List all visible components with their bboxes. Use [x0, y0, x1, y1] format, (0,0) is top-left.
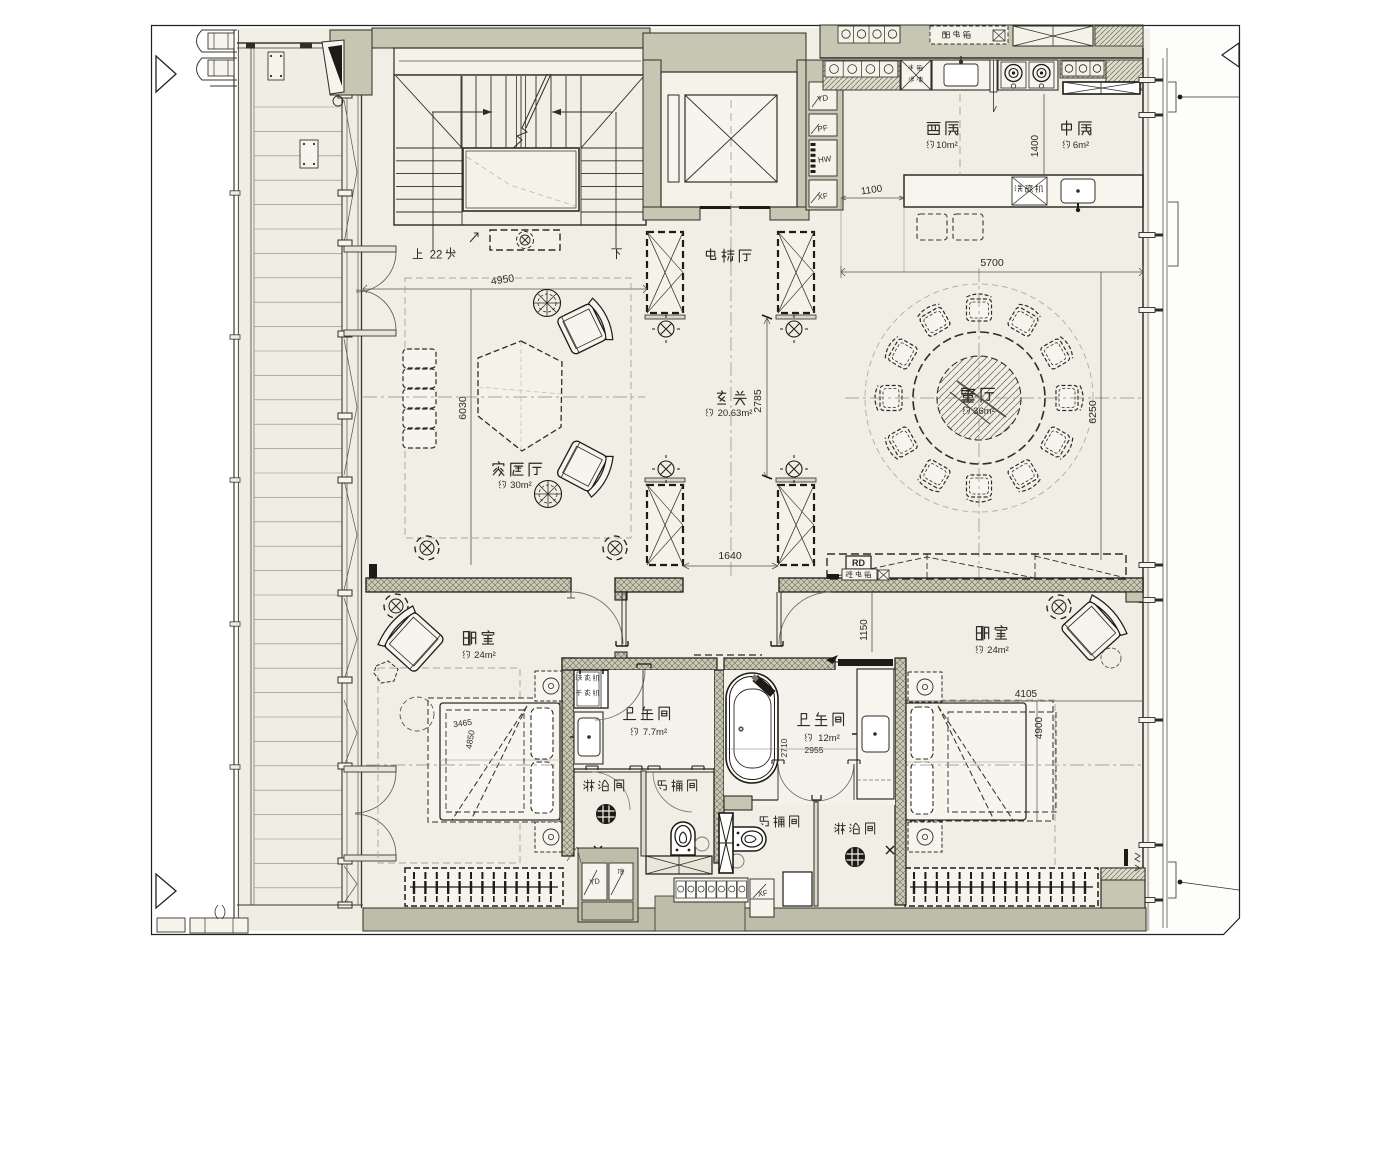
svg-text:30m²: 30m²: [510, 480, 532, 491]
svg-text:RD: RD: [852, 558, 865, 568]
svg-text:24m²: 24m²: [474, 650, 496, 661]
svg-text:10m²: 10m²: [936, 140, 958, 151]
svg-text:XF: XF: [757, 888, 768, 898]
svg-text:6m²: 6m²: [1073, 140, 1089, 151]
svg-text:24m²: 24m²: [987, 645, 1009, 656]
svg-text:2955: 2955: [805, 745, 824, 755]
svg-text:HW: HW: [817, 154, 832, 165]
svg-text:6250: 6250: [1087, 400, 1099, 424]
svg-text:20.63m²: 20.63m²: [718, 408, 753, 419]
svg-text:6030: 6030: [457, 396, 469, 420]
svg-text:36m²: 36m²: [973, 406, 995, 417]
svg-text:XF: XF: [817, 191, 828, 201]
svg-text:YD: YD: [589, 876, 601, 886]
svg-text:5700: 5700: [980, 257, 1004, 269]
svg-text:2785: 2785: [752, 389, 764, 413]
svg-text:1400: 1400: [1030, 134, 1041, 157]
svg-text:22: 22: [430, 250, 443, 262]
svg-text:7.7m²: 7.7m²: [643, 727, 667, 738]
svg-text:1150: 1150: [859, 619, 870, 641]
svg-text:12m²: 12m²: [818, 733, 840, 744]
svg-text:1640: 1640: [718, 550, 742, 562]
svg-text:2710: 2710: [779, 738, 789, 757]
svg-text:4105: 4105: [1015, 689, 1038, 700]
svg-text:4900: 4900: [1034, 716, 1045, 739]
